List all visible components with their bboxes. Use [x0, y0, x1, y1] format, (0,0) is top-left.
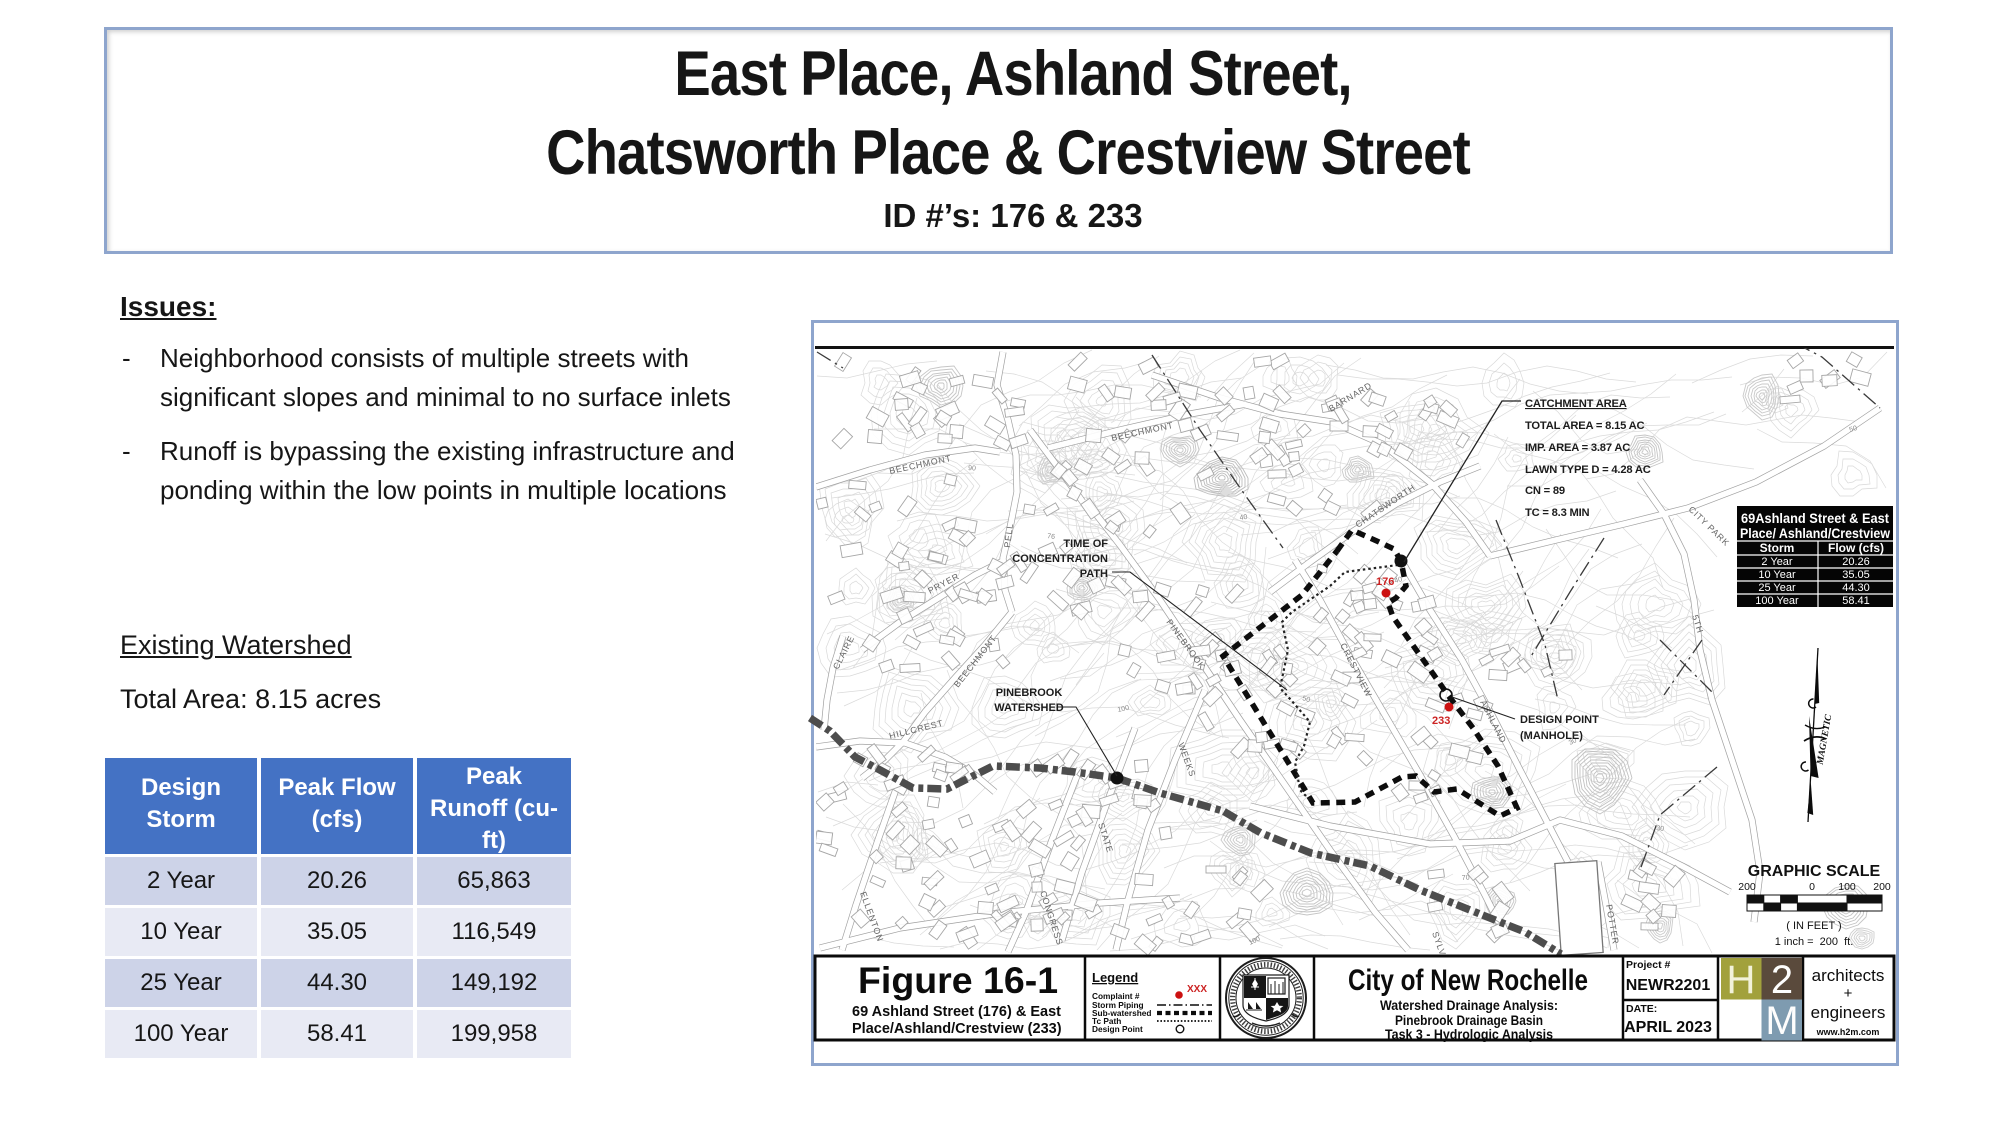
svg-text:PATH: PATH	[1080, 568, 1108, 580]
svg-text:1 inch = 200 ft.: 1 inch = 200 ft.	[1775, 936, 1854, 948]
svg-text:76: 76	[1047, 533, 1056, 541]
svg-text:DESIGN POINT: DESIGN POINT	[1520, 714, 1599, 726]
svg-text:www.h2m.com: www.h2m.com	[1816, 1027, 1880, 1037]
svg-text:CONCENTRATION: CONCENTRATION	[1012, 553, 1108, 565]
svg-text:+: +	[1844, 985, 1853, 1002]
svg-text:35.05: 35.05	[1842, 569, 1870, 581]
svg-text:Design Point: Design Point	[1092, 1024, 1143, 1034]
svg-text:Task 3 - Hydrologic Analysis: Task 3 - Hydrologic Analysis	[1385, 1027, 1553, 1042]
svg-text:69 Ashland Street (176) & East: 69 Ashland Street (176) & East	[852, 1004, 1061, 1020]
svg-text:200: 200	[1738, 881, 1756, 893]
svg-text:Flow (cfs): Flow (cfs)	[1828, 541, 1884, 555]
svg-text:CATCHMENT AREA: CATCHMENT AREA	[1525, 398, 1627, 410]
svg-text:Project #: Project #	[1626, 959, 1671, 971]
svg-text:XXX: XXX	[1187, 984, 1207, 995]
svg-text:MAGNETIC: MAGNETIC	[1815, 713, 1834, 766]
svg-text:40: 40	[1394, 576, 1403, 585]
svg-text:25 Year: 25 Year	[1758, 582, 1796, 594]
svg-text:engineers: engineers	[1811, 1003, 1886, 1022]
svg-text:TIME OF: TIME OF	[1063, 538, 1108, 550]
svg-text:5TH: 5TH	[1690, 614, 1705, 635]
svg-text:10 Year: 10 Year	[1758, 569, 1796, 581]
svg-text:44.30: 44.30	[1842, 582, 1870, 594]
svg-text:70: 70	[1462, 874, 1470, 882]
svg-text:GRAPHIC SCALE: GRAPHIC SCALE	[1748, 863, 1881, 880]
svg-text:Storm: Storm	[1760, 541, 1795, 555]
svg-text:Legend: Legend	[1092, 970, 1138, 985]
svg-text:(MANHOLE): (MANHOLE)	[1520, 730, 1583, 742]
svg-text:CITY PARK: CITY PARK	[1687, 504, 1732, 548]
svg-text:WATERSHED: WATERSHED	[994, 702, 1064, 714]
svg-text:90: 90	[968, 465, 976, 473]
svg-text:APRIL 2023: APRIL 2023	[1624, 1019, 1712, 1036]
svg-text:30: 30	[1656, 825, 1665, 833]
svg-text:TOTAL AREA = 8.15 AC: TOTAL AREA = 8.15 AC	[1525, 420, 1645, 432]
svg-text:City of New Rochelle: City of New Rochelle	[1348, 964, 1588, 997]
svg-text:58.41: 58.41	[1842, 595, 1870, 607]
svg-text:TC = 8.3 MIN: TC = 8.3 MIN	[1525, 507, 1590, 519]
svg-text:Pinebrook Drainage Basin: Pinebrook Drainage Basin	[1395, 1013, 1543, 1028]
svg-text:20.26: 20.26	[1842, 556, 1870, 568]
svg-text:Place/ Ashland/Crestview: Place/ Ashland/Crestview	[1740, 526, 1890, 541]
svg-text:2: 2	[1771, 958, 1793, 1002]
svg-text:69Ashland Street & East: 69Ashland Street & East	[1741, 511, 1889, 526]
svg-text:CHATSWORTH: CHATSWORTH	[1354, 482, 1418, 530]
svg-text:IMP. AREA = 3.87 AC: IMP. AREA = 3.87 AC	[1525, 442, 1630, 454]
svg-text:CN = 89: CN = 89	[1525, 485, 1565, 497]
svg-text:176: 176	[1376, 576, 1394, 588]
svg-text:PINEBROOK: PINEBROOK	[996, 687, 1063, 699]
svg-text:0: 0	[1809, 881, 1815, 893]
svg-text:PELL: PELL	[1002, 522, 1015, 548]
svg-text:200: 200	[1873, 881, 1891, 893]
svg-text:50: 50	[1301, 695, 1311, 704]
svg-text:LAWN TYPE D = 4.28 AC: LAWN TYPE D = 4.28 AC	[1525, 464, 1651, 476]
svg-text:100 Year: 100 Year	[1755, 595, 1799, 607]
svg-text:NEWR2201: NEWR2201	[1626, 977, 1711, 994]
svg-text:233: 233	[1432, 715, 1450, 727]
svg-text:M: M	[1765, 999, 1798, 1043]
svg-text:H: H	[1727, 958, 1756, 1002]
svg-text:40: 40	[1239, 514, 1248, 522]
svg-text:Watershed Drainage Analysis:: Watershed Drainage Analysis:	[1380, 998, 1558, 1013]
svg-text:( IN FEET ): ( IN FEET )	[1786, 920, 1841, 932]
svg-text:100: 100	[1838, 881, 1856, 893]
svg-text:DATE:: DATE:	[1626, 1003, 1657, 1015]
svg-text:2 Year: 2 Year	[1761, 556, 1793, 568]
svg-text:Figure 16-1: Figure 16-1	[858, 959, 1058, 1001]
svg-text:100: 100	[1117, 705, 1130, 714]
svg-text:Place/Ashland/Crestview (233): Place/Ashland/Crestview (233)	[852, 1021, 1062, 1037]
svg-text:architects: architects	[1812, 966, 1885, 985]
